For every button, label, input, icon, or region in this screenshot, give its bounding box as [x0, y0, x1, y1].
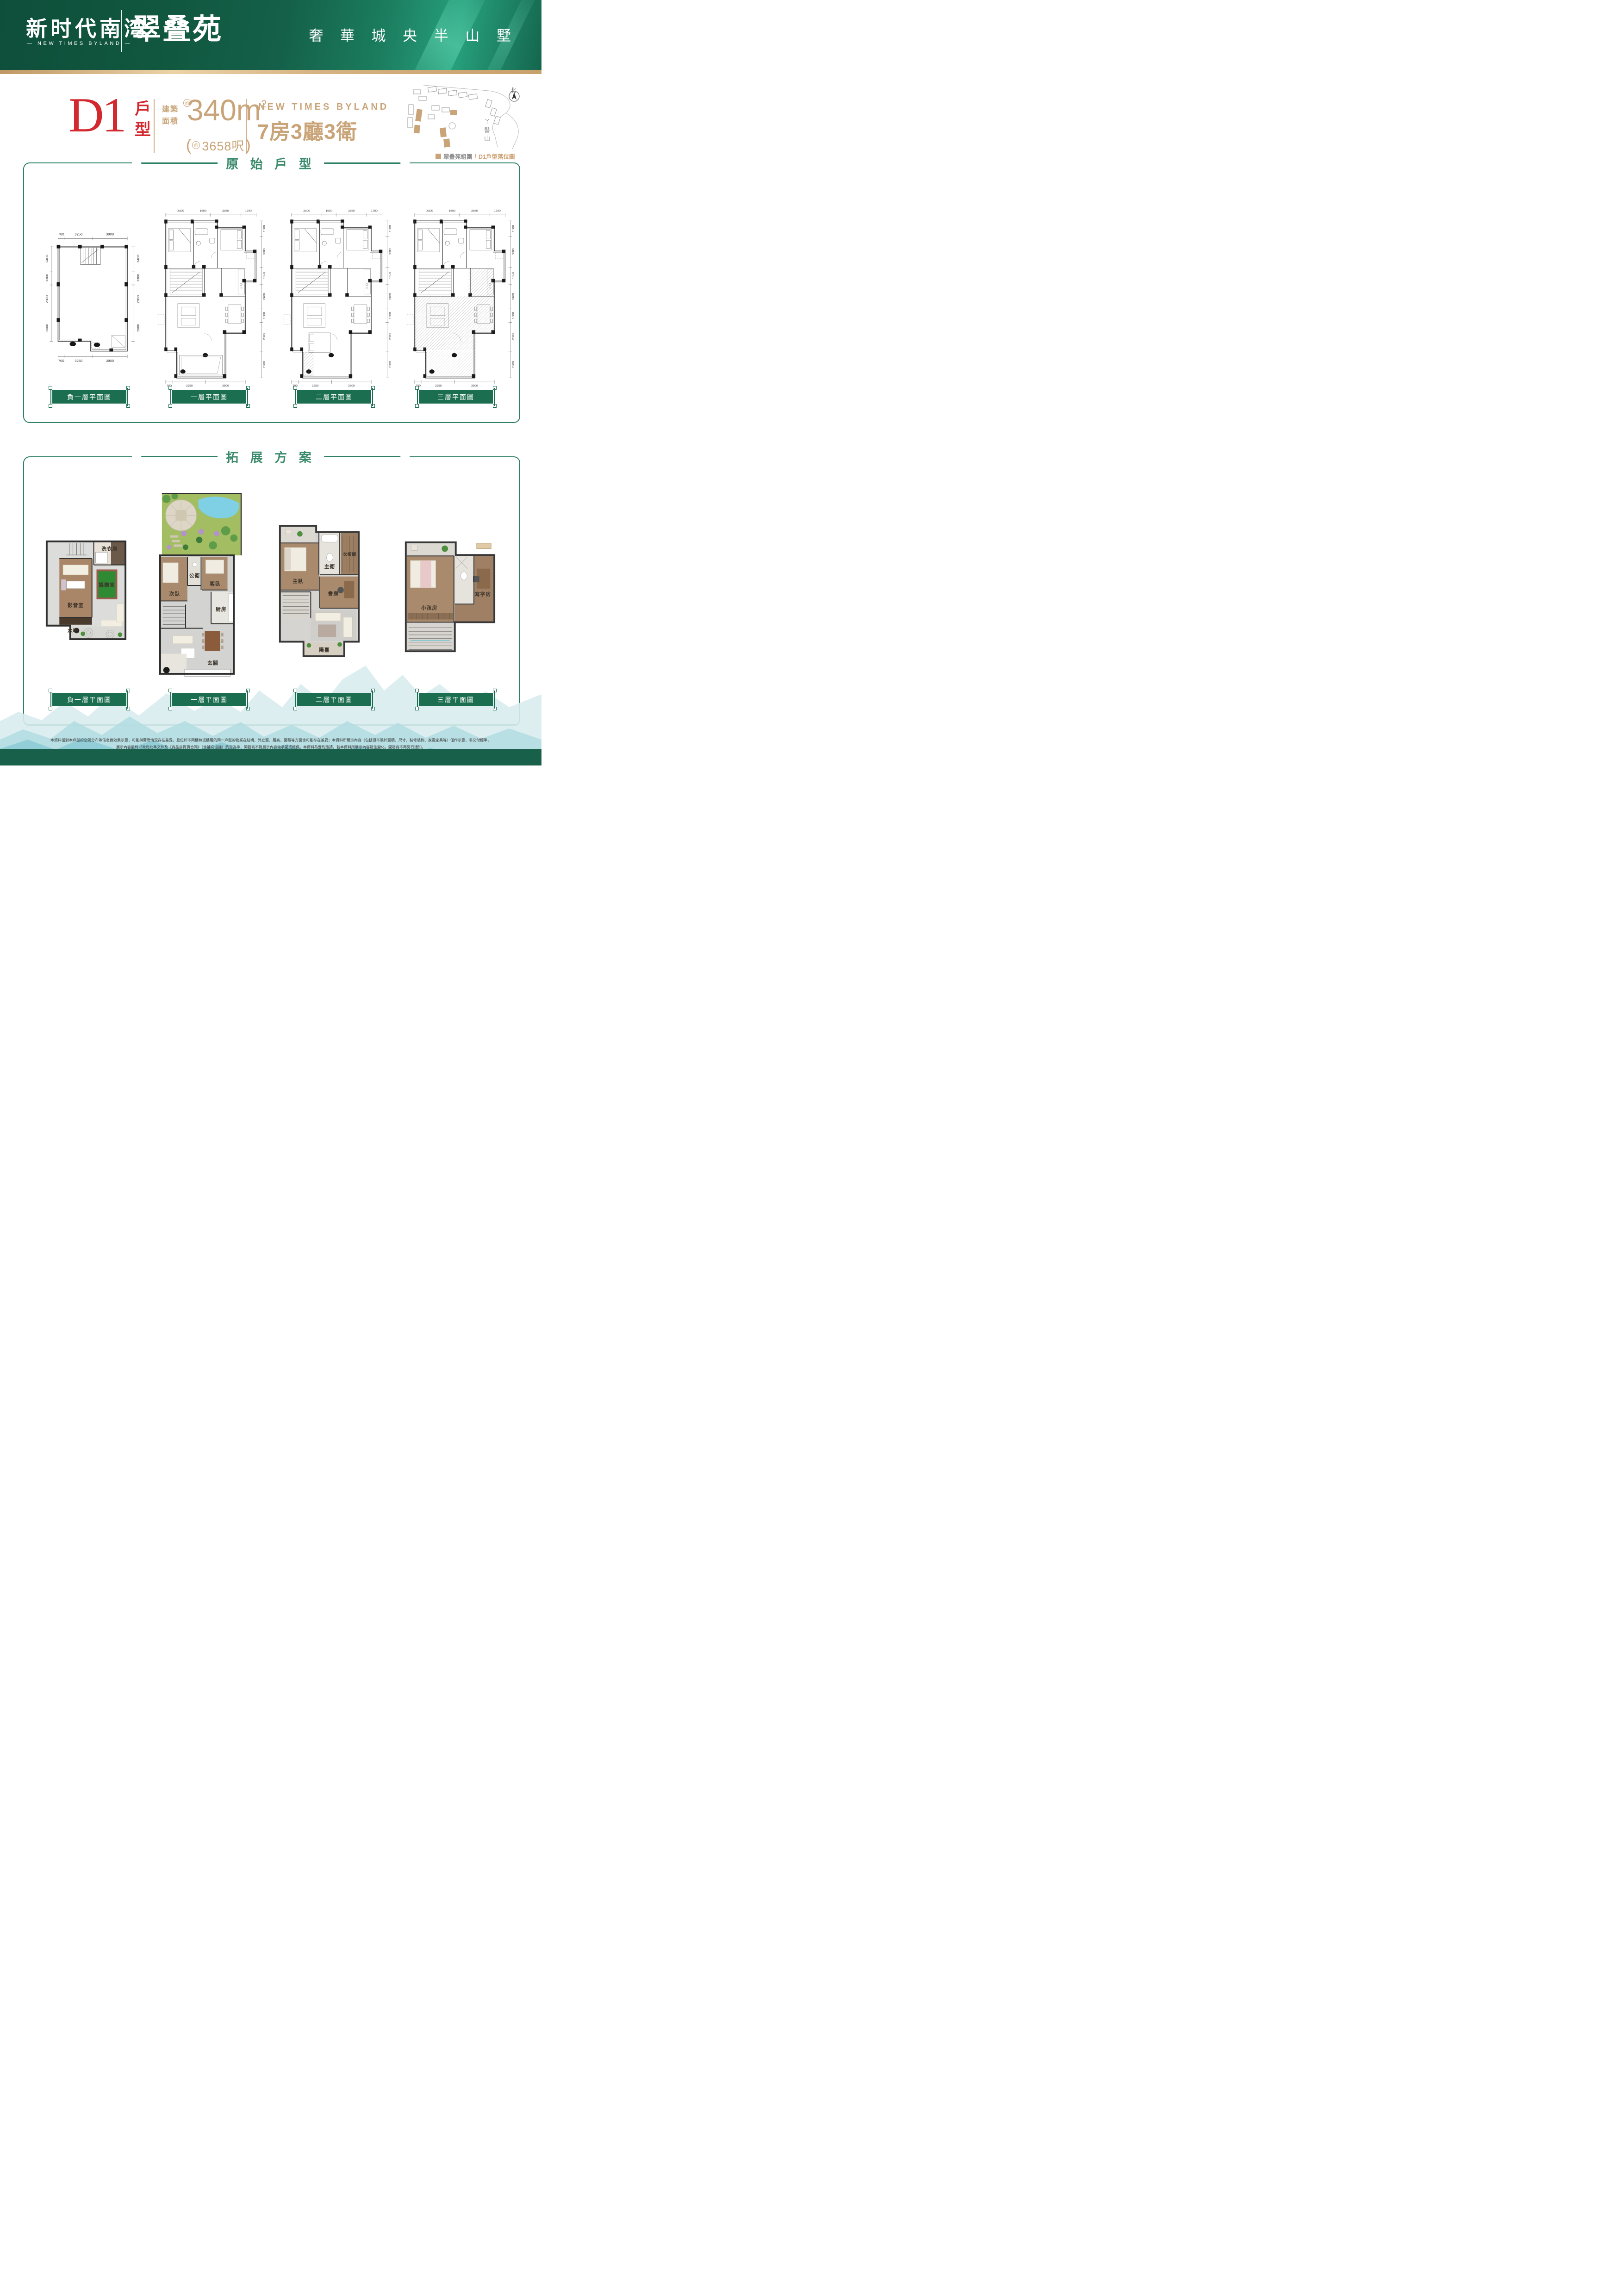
svg-text:3400: 3400: [177, 210, 184, 213]
footer-strip: [0, 749, 541, 765]
unit-code: D1: [68, 91, 125, 140]
svg-text:2400: 2400: [263, 293, 265, 300]
svg-text:影音室: 影音室: [68, 603, 84, 609]
svg-text:1650: 1650: [263, 272, 265, 279]
svg-text:2800: 2800: [512, 333, 514, 340]
area-value: 340m2: [187, 95, 267, 125]
svg-text:3450: 3450: [222, 210, 229, 213]
svg-text:2800: 2800: [263, 333, 265, 340]
svg-text:3900: 3900: [222, 384, 229, 387]
svg-text:主衛: 主衛: [324, 564, 335, 570]
original-section-title: 原 始 戶 型: [132, 154, 410, 172]
svg-text:1600: 1600: [326, 210, 333, 213]
plan-label-floor3: 三層平面圖: [419, 390, 493, 404]
north-arrow-icon: [509, 91, 519, 101]
original-plan-floor2: 3400 1600 3450 1700 1500 3000 1650 2400 …: [279, 204, 391, 389]
expanded-plan-basement: 洗衣房 影音室 娛樂室 水吧: [43, 537, 129, 641]
title-line: [141, 456, 218, 457]
title-line: [324, 162, 400, 164]
svg-text:2400: 2400: [45, 255, 49, 262]
disclaimer-line1: 本資料僅對本戶型的空間分布等信息做效果示意，可能與實際情況存在差異，且位於不同樓…: [0, 737, 541, 744]
title-line: [324, 456, 400, 457]
svg-text:3000: 3000: [263, 249, 265, 255]
svg-text:3900: 3900: [106, 232, 114, 236]
expanded-plan-floor2: 主臥 主衛 衣帽間 書房 陽臺: [276, 522, 362, 658]
plan-label-floor2: 二層平面圖: [297, 390, 371, 404]
svg-text:3250: 3250: [75, 232, 82, 236]
site-map-legend: 翠叠苑組團 / D1戶型落位圖: [436, 152, 515, 161]
svg-text:次臥: 次臥: [169, 591, 180, 597]
layout-spec: 7房3廳3衛: [257, 115, 357, 145]
brochure-page: 新时代南湾 — NEW TIMES BYLAND — 翠叠苑 奢 華 城 央 半…: [0, 0, 541, 765]
svg-text:3250: 3250: [312, 384, 319, 387]
plan-label-basement-expanded: 負一層平面圖: [52, 693, 126, 706]
plan-label-floor2-expanded: 二層平面圖: [297, 693, 371, 706]
project-name: 翠叠苑: [132, 6, 223, 47]
svg-text:2800: 2800: [136, 295, 140, 303]
svg-text:1500: 1500: [512, 225, 514, 232]
svg-text:公衛: 公衛: [189, 572, 200, 579]
gold-strip: [0, 70, 541, 74]
header-banner: 新时代南湾 — NEW TIMES BYLAND — 翠叠苑 奢 華 城 央 半…: [0, 0, 541, 70]
divider: [154, 99, 155, 153]
svg-text:3000: 3000: [512, 249, 514, 255]
plan-label-floor3-expanded: 三層平面圖: [419, 693, 493, 706]
expanded-section-title: 拓 展 方 案: [132, 447, 410, 466]
legend-swatch: [436, 154, 441, 159]
svg-text:衣帽間: 衣帽間: [343, 552, 356, 557]
svg-text:2800: 2800: [45, 295, 49, 303]
svg-text:3400: 3400: [426, 210, 433, 213]
svg-text:2600: 2600: [389, 361, 391, 368]
svg-text:3000: 3000: [389, 249, 391, 255]
svg-text:3400: 3400: [303, 210, 310, 213]
approx-badge: 約: [192, 141, 200, 149]
svg-text:1650: 1650: [512, 272, 514, 279]
svg-text:3900: 3900: [348, 384, 355, 387]
svg-text:2400: 2400: [512, 293, 514, 300]
svg-text:1300: 1300: [512, 312, 514, 319]
svg-text:3900: 3900: [471, 384, 478, 387]
plan-label-floor1-expanded: 一層平面圖: [172, 693, 246, 706]
svg-text:書房: 書房: [328, 591, 339, 597]
svg-text:1300: 1300: [136, 274, 140, 282]
svg-text:3450: 3450: [348, 210, 355, 213]
svg-text:1300: 1300: [263, 312, 265, 319]
svg-text:客臥: 客臥: [209, 580, 221, 587]
svg-text:玄關: 玄關: [207, 660, 218, 666]
unit-type-label: 戶型: [130, 100, 153, 142]
area-in-feet: ( 約 3658呎 ): [186, 136, 251, 154]
svg-text:1300: 1300: [389, 312, 391, 319]
tagline: 奢 華 城 央 半 山 墅: [309, 24, 517, 45]
plan-label-basement: 負一層平面圖: [52, 390, 126, 404]
svg-text:1700: 1700: [371, 210, 378, 213]
svg-text:1700: 1700: [245, 210, 252, 213]
svg-text:3250: 3250: [75, 359, 82, 363]
original-plan-floor3: 3400 1600 3450 1700 1500 3000 1650 2400 …: [402, 204, 514, 389]
svg-text:洗衣房: 洗衣房: [101, 546, 118, 552]
svg-text:2400: 2400: [389, 293, 391, 300]
svg-text:娛樂室: 娛樂室: [98, 582, 115, 588]
developer-logo: 新时代南湾: [26, 12, 149, 43]
svg-text:700: 700: [58, 359, 64, 363]
svg-text:3250: 3250: [435, 384, 442, 387]
area-label: 建築 面積: [162, 104, 179, 127]
svg-text:水吧: 水吧: [67, 628, 78, 634]
svg-text:主臥: 主臥: [292, 578, 303, 584]
plan-label-floor1: 一層平面圖: [172, 390, 246, 404]
svg-text:厨房: 厨房: [216, 606, 227, 612]
svg-text:2600: 2600: [136, 324, 140, 332]
logo-divider: [121, 10, 122, 52]
svg-text:2400: 2400: [136, 255, 140, 262]
developer-logo-en: — NEW TIMES BYLAND —: [27, 41, 132, 46]
svg-text:寫字房: 寫字房: [475, 591, 491, 597]
original-plan-floor1: 3400 1600 3450 1700 1500 3000 1650 2400 …: [153, 204, 265, 389]
svg-text:3900: 3900: [106, 359, 114, 363]
svg-text:小孩房: 小孩房: [421, 605, 437, 611]
svg-text:1500: 1500: [263, 225, 265, 232]
svg-text:1300: 1300: [45, 274, 49, 282]
svg-text:陽臺: 陽臺: [319, 647, 330, 653]
svg-text:1700: 1700: [494, 210, 501, 213]
svg-text:2800: 2800: [389, 333, 391, 340]
svg-text:2600: 2600: [45, 324, 49, 332]
svg-text:1500: 1500: [389, 225, 391, 232]
expanded-plan-floor1: 次臥 公衛 客臥 厨房 玄關: [157, 492, 244, 678]
svg-text:1650: 1650: [389, 272, 391, 279]
svg-text:2600: 2600: [263, 361, 265, 368]
svg-text:3450: 3450: [471, 210, 478, 213]
title-line: [141, 162, 218, 164]
svg-text:2600: 2600: [512, 361, 514, 368]
svg-text:1600: 1600: [200, 210, 207, 213]
svg-text:700: 700: [58, 232, 64, 236]
divider: [246, 99, 247, 153]
original-plan-basement: 700 3250 3900 2400 1300 2800 2600 2400 1…: [38, 226, 141, 365]
svg-text:1600: 1600: [449, 210, 456, 213]
expanded-plan-floor3: 小孩房 寫字房: [401, 537, 497, 657]
svg-text:3250: 3250: [186, 384, 193, 387]
brand-en: NEW TIMES BYLAND: [258, 102, 389, 112]
site-map: [396, 81, 539, 151]
